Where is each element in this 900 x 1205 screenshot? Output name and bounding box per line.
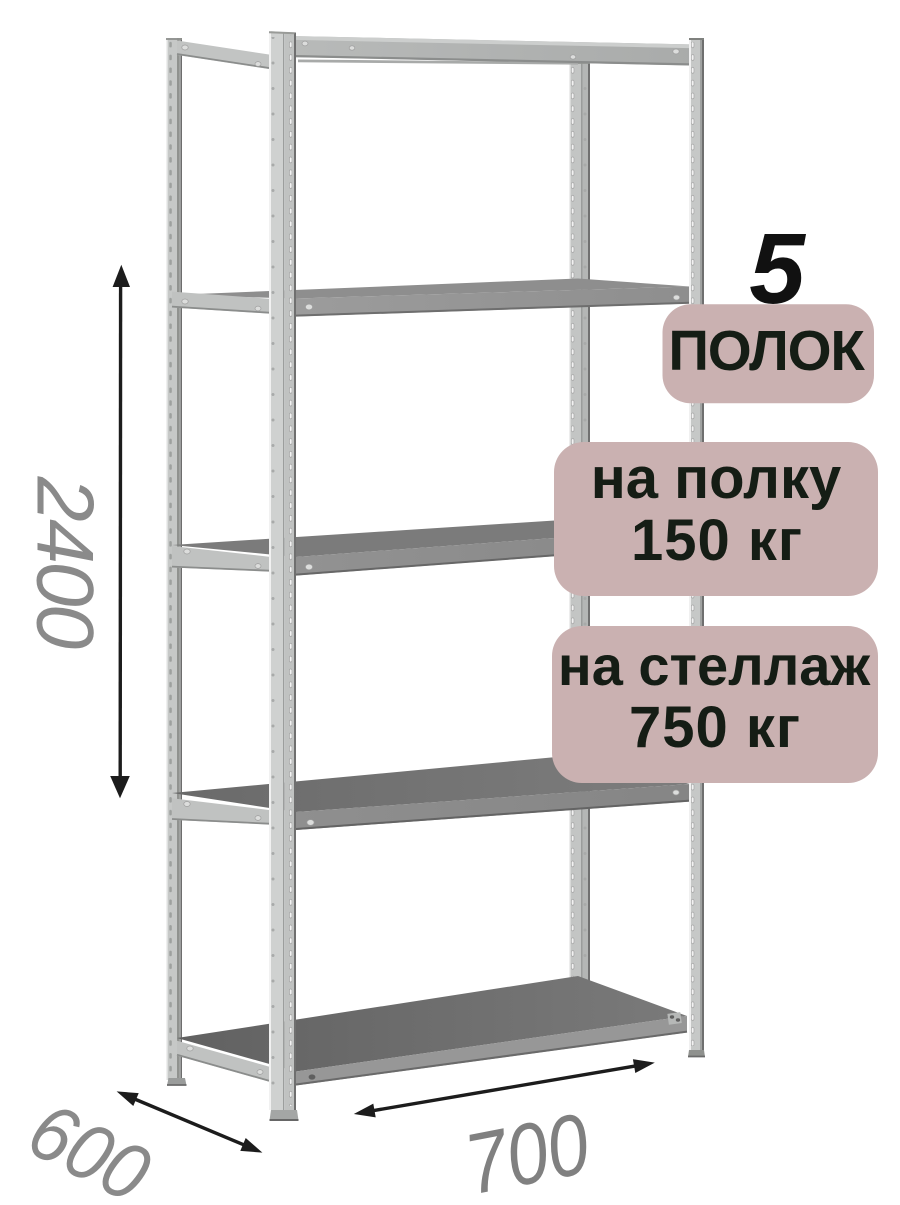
svg-text:2400: 2400 [20, 476, 110, 649]
svg-text:ПОЛОК: ПОЛОК [668, 319, 865, 382]
svg-text:750 кг: 750 кг [629, 695, 801, 760]
svg-text:на полку: на полку [591, 446, 842, 511]
svg-text:на стеллаж: на стеллаж [558, 634, 872, 697]
svg-text:150 кг: 150 кг [631, 508, 803, 573]
